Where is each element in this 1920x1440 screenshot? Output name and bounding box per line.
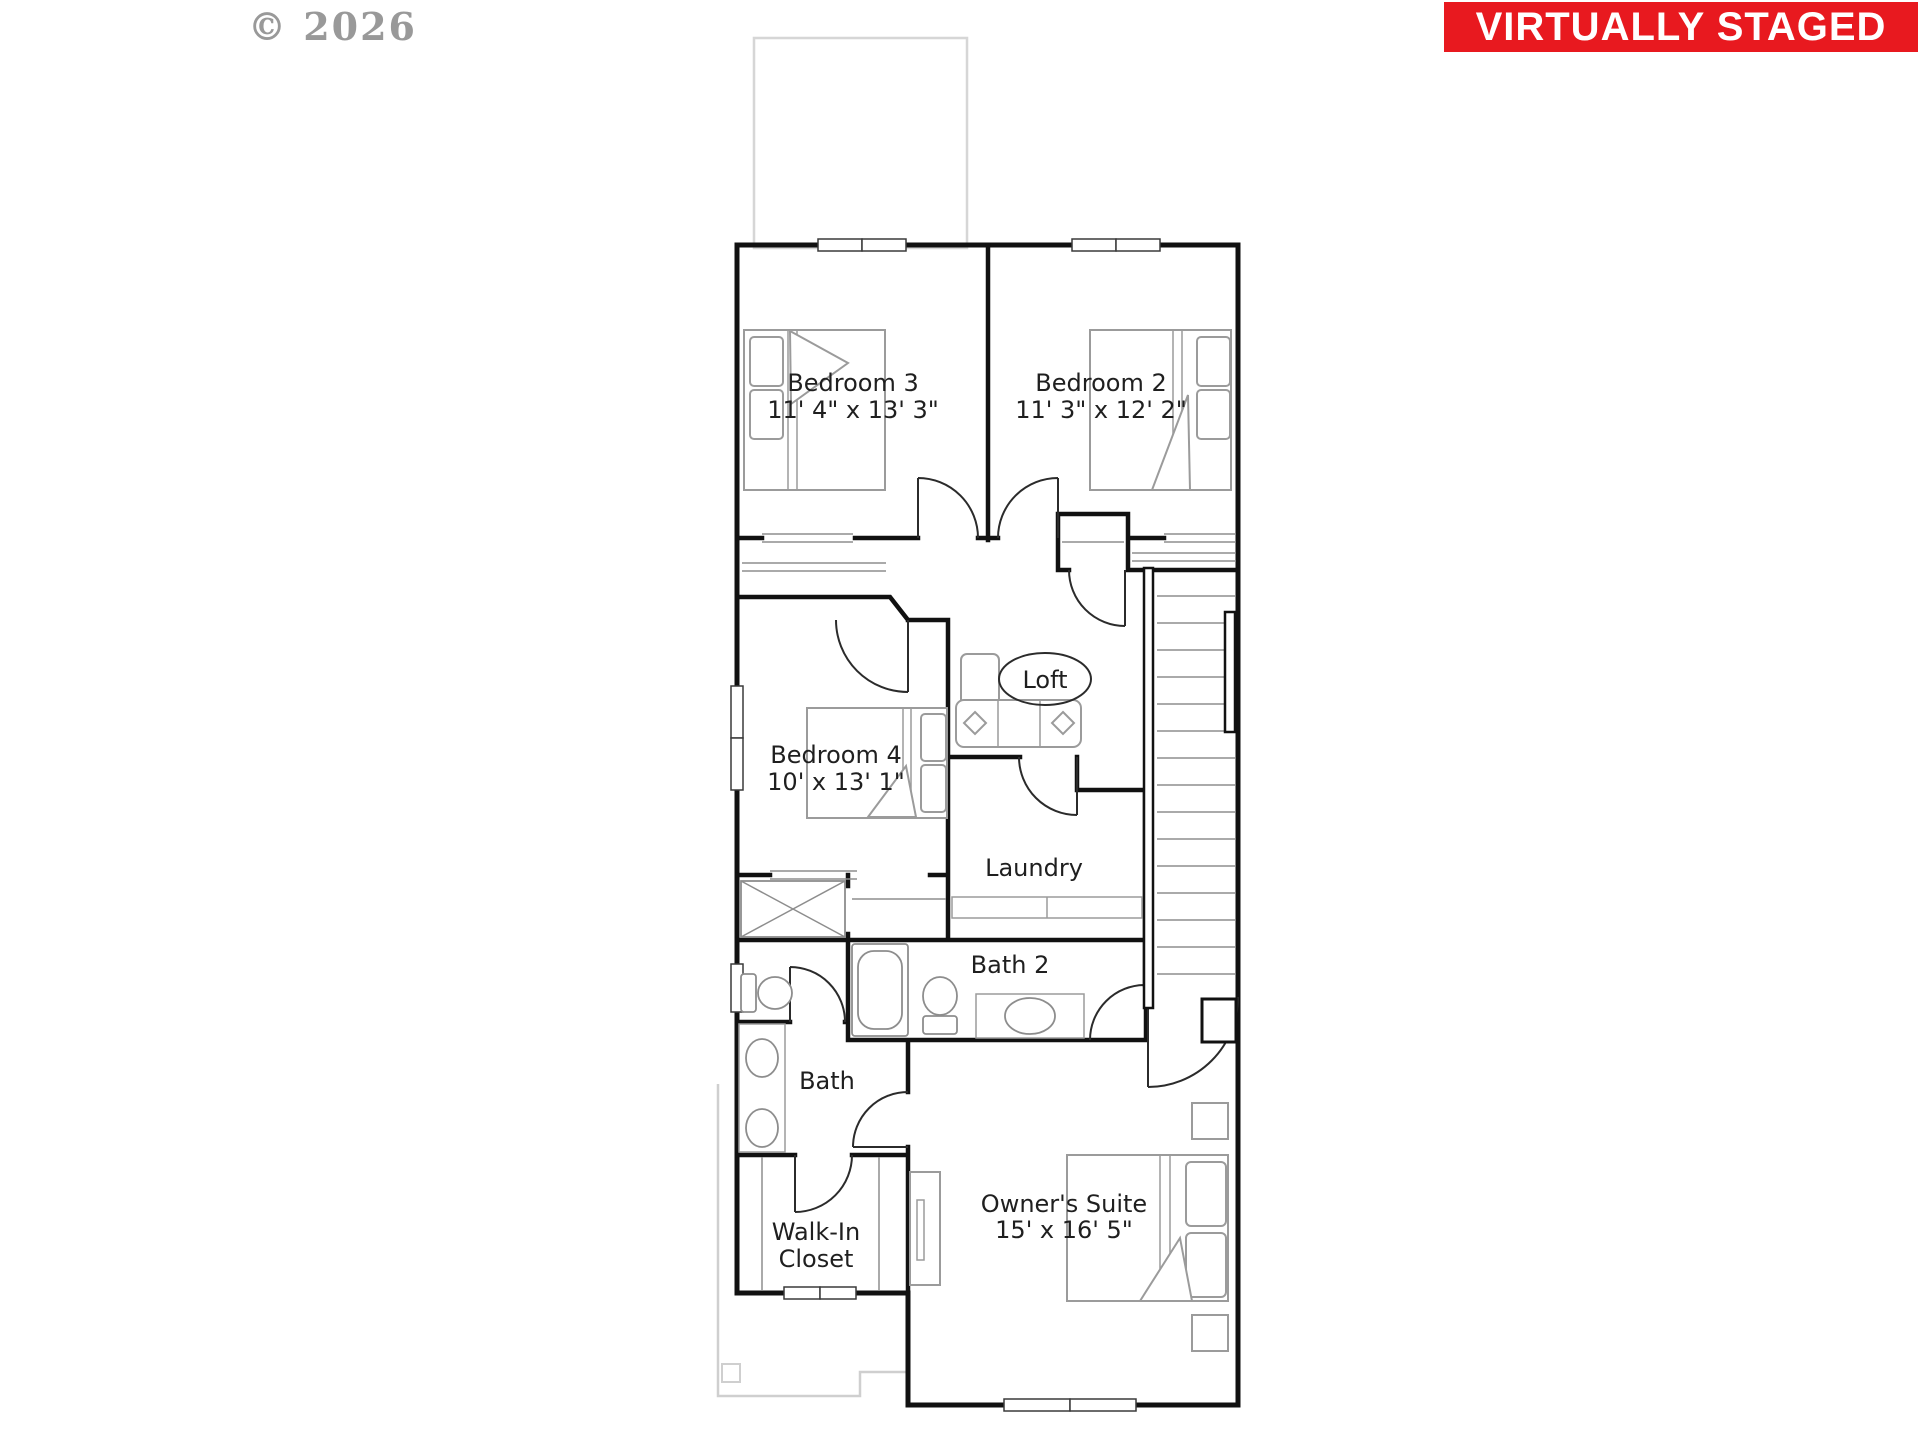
room-label-loft: Loft [1022, 666, 1067, 694]
room-dims-bedroom-3: 11' 4" x 13' 3" [767, 396, 939, 424]
vanity-owners-bath [739, 1024, 785, 1152]
doors [790, 478, 1238, 1212]
toilet-bath2 [923, 977, 957, 1034]
stair-wall-rail [1225, 612, 1235, 732]
toilet-owners-bath [741, 974, 792, 1012]
room-dims-bedroom-4: 10' x 13' 1" [767, 768, 905, 796]
vanity-bath2 [976, 994, 1084, 1038]
shower [741, 881, 845, 937]
room-dims-bedroom-2: 11' 3" x 12' 2" [1015, 396, 1187, 424]
room-label-bath-2: Bath 2 [971, 951, 1050, 979]
stair-handrail [1144, 568, 1153, 1008]
room-label-bedroom-4: Bedroom 4 [770, 741, 901, 769]
nightstand-top [1192, 1103, 1228, 1139]
room-label-bedroom-2: Bedroom 2 [1035, 369, 1166, 397]
room-label-walk-in-closet-line1: Walk-In [772, 1218, 860, 1246]
room-label-laundry: Laundry [985, 854, 1083, 882]
room-dims-owners-suite: 15' x 16' 5" [995, 1216, 1133, 1244]
room-labels: Bedroom 3 11' 4" x 13' 3" Bedroom 2 11' … [767, 369, 1187, 1273]
nightstand-bottom [1192, 1315, 1228, 1351]
room-label-bath: Bath [799, 1067, 855, 1095]
floor-plan-page: { "watermark": { "text": "© 2026" }, "ba… [0, 0, 1920, 1440]
dresser [910, 1172, 940, 1285]
room-label-bedroom-3: Bedroom 3 [787, 369, 918, 397]
bathtub-bath2 [852, 944, 908, 1036]
room-label-walk-in-closet-line2: Closet [779, 1245, 854, 1273]
floor-plan: Bedroom 3 11' 4" x 13' 3" Bedroom 2 11' … [0, 0, 1920, 1440]
room-label-owners-suite: Owner's Suite [981, 1190, 1147, 1218]
washer-dryer-counter [952, 897, 1142, 918]
stairs [1144, 568, 1236, 1042]
